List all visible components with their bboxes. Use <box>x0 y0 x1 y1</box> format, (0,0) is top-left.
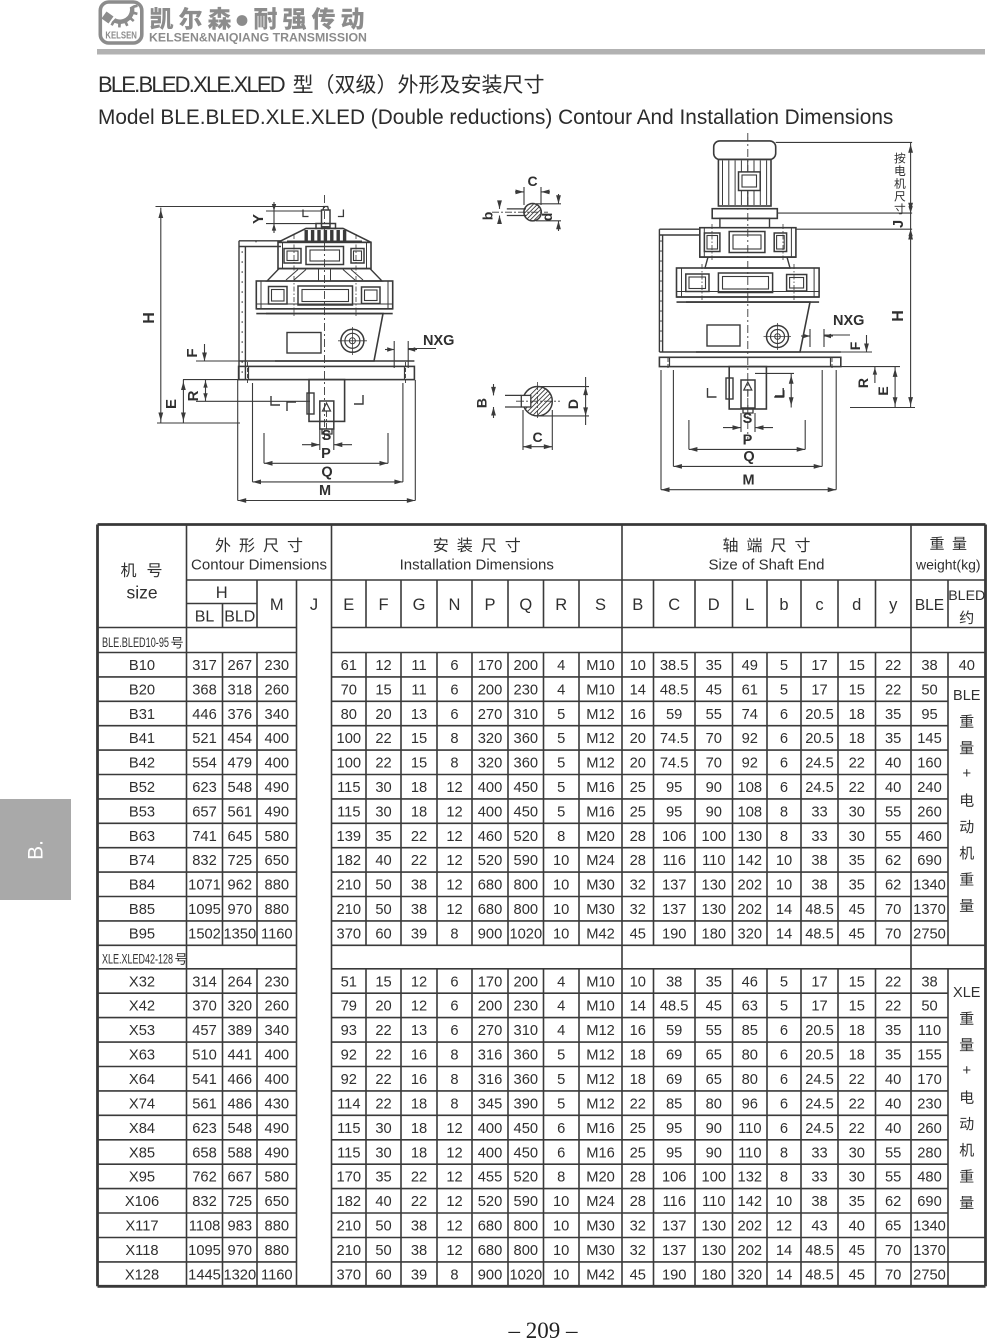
svg-text:M42: M42 <box>586 926 615 942</box>
svg-text:18: 18 <box>411 804 427 820</box>
svg-text:H: H <box>141 312 158 324</box>
svg-text:X95: X95 <box>129 1170 155 1186</box>
svg-text:400: 400 <box>478 804 503 820</box>
svg-text:12: 12 <box>446 1243 462 1259</box>
svg-text:Model BLE.BLED.XLE.XLED (Doubl: Model BLE.BLED.XLE.XLED (Double reductio… <box>98 106 893 129</box>
svg-text:1095: 1095 <box>188 902 221 918</box>
svg-text:5: 5 <box>780 974 788 990</box>
svg-text:G: G <box>413 596 426 614</box>
svg-text:202: 202 <box>738 1243 763 1259</box>
svg-text:12: 12 <box>375 658 391 674</box>
svg-text:5: 5 <box>780 658 788 674</box>
svg-text:260: 260 <box>265 999 290 1015</box>
svg-text:160: 160 <box>917 756 942 772</box>
svg-text:561: 561 <box>228 804 253 820</box>
svg-text:12: 12 <box>446 829 462 845</box>
svg-text:50: 50 <box>375 902 391 918</box>
svg-text:155: 155 <box>917 1048 942 1064</box>
svg-text:8: 8 <box>780 804 788 820</box>
svg-text:b: b <box>779 596 788 614</box>
svg-text:R: R <box>555 596 567 614</box>
svg-text:116: 116 <box>662 853 685 869</box>
svg-text:8: 8 <box>450 1096 458 1112</box>
svg-text:69: 69 <box>666 1048 682 1064</box>
svg-text:260: 260 <box>917 1121 942 1137</box>
svg-text:137: 137 <box>662 878 687 894</box>
svg-text:6: 6 <box>450 999 458 1015</box>
svg-text:554: 554 <box>192 756 217 772</box>
svg-text:6: 6 <box>450 682 458 698</box>
svg-text:520: 520 <box>514 1170 539 1186</box>
svg-text:10: 10 <box>630 658 646 674</box>
svg-text:70: 70 <box>885 1267 901 1283</box>
svg-text:16: 16 <box>411 1048 427 1064</box>
svg-text:25: 25 <box>630 804 646 820</box>
svg-text:548: 548 <box>228 1121 253 1137</box>
svg-text:74.5: 74.5 <box>660 756 689 772</box>
svg-text:8: 8 <box>450 756 458 772</box>
svg-text:400: 400 <box>265 1048 290 1064</box>
svg-text:4: 4 <box>557 999 565 1015</box>
svg-text:454: 454 <box>228 731 253 747</box>
svg-text:5: 5 <box>557 1072 565 1088</box>
svg-text:22: 22 <box>375 1096 391 1112</box>
svg-text:J: J <box>891 220 907 228</box>
svg-text:40: 40 <box>849 1219 865 1235</box>
svg-text:115: 115 <box>337 1145 360 1161</box>
svg-text:5: 5 <box>557 707 565 723</box>
svg-text:13: 13 <box>411 707 427 723</box>
svg-text:22: 22 <box>375 731 391 747</box>
svg-text:983: 983 <box>228 1219 253 1235</box>
svg-text:55: 55 <box>885 829 901 845</box>
svg-text:5: 5 <box>557 804 565 820</box>
svg-text:114: 114 <box>337 1096 360 1112</box>
svg-text:800: 800 <box>514 1243 539 1259</box>
svg-text:650: 650 <box>265 1194 290 1210</box>
svg-text:1160: 1160 <box>261 926 293 942</box>
svg-text:S: S <box>595 596 606 614</box>
svg-text:320: 320 <box>738 1267 763 1283</box>
svg-text:8: 8 <box>780 829 788 845</box>
svg-text:18: 18 <box>411 1121 427 1137</box>
svg-text:455: 455 <box>478 1170 503 1186</box>
svg-text:14: 14 <box>776 1243 792 1259</box>
svg-text:38: 38 <box>811 878 827 894</box>
svg-text:M30: M30 <box>586 878 615 894</box>
svg-text:70: 70 <box>706 756 722 772</box>
svg-text:17: 17 <box>811 682 827 698</box>
svg-text:X42: X42 <box>129 999 155 1015</box>
svg-text:8: 8 <box>450 1048 458 1064</box>
svg-text:M12: M12 <box>586 1096 615 1112</box>
svg-text:741: 741 <box>192 829 217 845</box>
svg-text:680: 680 <box>478 878 503 894</box>
svg-text:61: 61 <box>341 658 357 674</box>
svg-text:340: 340 <box>265 1023 290 1039</box>
svg-text:Q: Q <box>519 596 532 614</box>
svg-text:50: 50 <box>375 1243 391 1259</box>
svg-text:74.5: 74.5 <box>660 731 689 747</box>
svg-text:320: 320 <box>228 999 253 1015</box>
svg-text:14: 14 <box>630 999 646 1015</box>
svg-text:490: 490 <box>265 780 290 796</box>
svg-text:832: 832 <box>192 1194 217 1210</box>
svg-text:S: S <box>322 428 332 444</box>
svg-text:510: 510 <box>192 1048 217 1064</box>
svg-text:490: 490 <box>265 804 290 820</box>
svg-text:400: 400 <box>478 1145 503 1161</box>
svg-text:BLD: BLD <box>224 609 255 626</box>
svg-text:520: 520 <box>514 829 539 845</box>
svg-text:8: 8 <box>557 829 565 845</box>
svg-text:C: C <box>527 173 537 189</box>
svg-text:40: 40 <box>375 853 391 869</box>
svg-text:40: 40 <box>885 1072 901 1088</box>
svg-text:130: 130 <box>702 902 727 918</box>
svg-text:70: 70 <box>885 1243 901 1259</box>
svg-text:170: 170 <box>478 974 503 990</box>
svg-text:18: 18 <box>849 731 865 747</box>
svg-text:24.5: 24.5 <box>805 1121 834 1137</box>
svg-text:17: 17 <box>811 974 827 990</box>
svg-text:74: 74 <box>742 707 758 723</box>
svg-text:48.5: 48.5 <box>805 1243 834 1259</box>
svg-text:1020: 1020 <box>509 1267 542 1283</box>
svg-text:479: 479 <box>228 756 253 772</box>
svg-text:48.5: 48.5 <box>805 1267 834 1283</box>
svg-text:10: 10 <box>630 974 646 990</box>
svg-text:18: 18 <box>849 707 865 723</box>
svg-text:XLE.XLED42-128: XLE.XLED42-128 <box>102 951 173 966</box>
svg-text:35: 35 <box>885 1048 901 1064</box>
svg-text:50: 50 <box>921 682 937 698</box>
svg-text:12: 12 <box>446 902 462 918</box>
svg-text:12: 12 <box>446 780 462 796</box>
svg-text:1160: 1160 <box>261 1267 293 1283</box>
svg-text:45: 45 <box>849 902 865 918</box>
svg-text:B53: B53 <box>129 804 155 820</box>
svg-text:400: 400 <box>265 756 290 772</box>
svg-text:800: 800 <box>514 878 539 894</box>
svg-text:10: 10 <box>776 1194 792 1210</box>
svg-text:M16: M16 <box>586 1121 615 1137</box>
svg-text:22: 22 <box>849 780 865 796</box>
svg-text:690: 690 <box>917 1194 942 1210</box>
svg-text:490: 490 <box>265 1145 290 1161</box>
svg-text:15: 15 <box>849 999 865 1015</box>
svg-text:B31: B31 <box>129 707 155 723</box>
svg-text:X74: X74 <box>129 1096 155 1112</box>
svg-text:645: 645 <box>228 829 253 845</box>
svg-text:X118: X118 <box>125 1243 158 1259</box>
svg-text:18: 18 <box>411 1145 427 1161</box>
svg-text:130: 130 <box>702 1219 727 1235</box>
svg-text:95: 95 <box>666 780 682 796</box>
svg-text:18: 18 <box>411 780 427 796</box>
svg-text:22: 22 <box>885 999 901 1015</box>
svg-text:690: 690 <box>917 853 942 869</box>
svg-text:2750: 2750 <box>913 926 946 942</box>
svg-text:B95: B95 <box>129 926 155 942</box>
svg-text:B: B <box>474 398 490 408</box>
svg-text:30: 30 <box>849 1170 865 1186</box>
svg-text:62: 62 <box>885 1194 901 1210</box>
svg-text:M16: M16 <box>586 1145 615 1161</box>
svg-text:33: 33 <box>811 804 827 820</box>
svg-text:8: 8 <box>450 1072 458 1088</box>
svg-text:69: 69 <box>666 1072 682 1088</box>
svg-text:590: 590 <box>514 1194 539 1210</box>
svg-text:35: 35 <box>885 707 901 723</box>
svg-text:180: 180 <box>702 1267 727 1283</box>
svg-text:6: 6 <box>450 1023 458 1039</box>
svg-text:92: 92 <box>341 1048 357 1064</box>
svg-text:310: 310 <box>514 1023 539 1039</box>
svg-text:16: 16 <box>630 1023 646 1039</box>
svg-text:10: 10 <box>776 853 792 869</box>
svg-text:20: 20 <box>630 731 646 747</box>
svg-text:M12: M12 <box>586 731 615 747</box>
svg-text:6: 6 <box>780 1048 788 1064</box>
svg-text:210: 210 <box>337 902 362 918</box>
svg-text:6: 6 <box>780 1023 788 1039</box>
svg-text:80: 80 <box>742 1048 758 1064</box>
svg-text:J: J <box>310 596 318 614</box>
svg-text:490: 490 <box>265 1121 290 1137</box>
svg-text:55: 55 <box>885 1170 901 1186</box>
svg-text:22: 22 <box>849 1072 865 1088</box>
svg-text:137: 137 <box>662 902 687 918</box>
svg-text:R: R <box>185 390 202 401</box>
svg-text:65: 65 <box>706 1048 722 1064</box>
svg-text:100: 100 <box>337 756 362 772</box>
svg-text:D: D <box>708 596 720 614</box>
svg-text:190: 190 <box>662 1267 687 1283</box>
svg-text:X128: X128 <box>125 1267 159 1283</box>
svg-text:30: 30 <box>375 780 391 796</box>
svg-text:182: 182 <box>337 853 362 869</box>
svg-text:230: 230 <box>265 974 290 990</box>
svg-text:20.5: 20.5 <box>805 707 834 723</box>
svg-text:12: 12 <box>446 1170 462 1186</box>
svg-text:50: 50 <box>375 1219 391 1235</box>
svg-text:16: 16 <box>630 707 646 723</box>
svg-text:6: 6 <box>780 1096 788 1112</box>
svg-text:R: R <box>855 378 871 388</box>
svg-text:6: 6 <box>780 756 788 772</box>
svg-text:22: 22 <box>885 682 901 698</box>
svg-text:18: 18 <box>411 1096 427 1112</box>
svg-text:130: 130 <box>738 829 763 845</box>
svg-text:20: 20 <box>630 756 646 772</box>
svg-text:62: 62 <box>885 853 901 869</box>
svg-text:85: 85 <box>666 1096 682 1112</box>
svg-text:Q: Q <box>743 449 754 465</box>
svg-text:6: 6 <box>780 780 788 796</box>
svg-text:900: 900 <box>478 1267 503 1283</box>
svg-text:30: 30 <box>849 829 865 845</box>
svg-text:1071: 1071 <box>188 878 221 894</box>
svg-text:38: 38 <box>666 974 682 990</box>
svg-text:38: 38 <box>411 1219 427 1235</box>
svg-text:45: 45 <box>706 682 722 698</box>
svg-text:142: 142 <box>738 853 763 869</box>
svg-text:190: 190 <box>662 926 687 942</box>
svg-text:110: 110 <box>738 1121 761 1137</box>
svg-text:20.5: 20.5 <box>805 1048 834 1064</box>
svg-text:M12: M12 <box>586 1072 615 1088</box>
svg-text:50: 50 <box>375 878 391 894</box>
svg-text:4: 4 <box>557 974 565 990</box>
svg-text:30: 30 <box>375 1145 391 1161</box>
svg-text:X84: X84 <box>129 1121 155 1137</box>
svg-text:658: 658 <box>192 1145 217 1161</box>
svg-text:320: 320 <box>478 756 503 772</box>
svg-text:X117: X117 <box>125 1219 158 1235</box>
svg-text:B20: B20 <box>129 682 155 698</box>
svg-text:170: 170 <box>337 1170 362 1186</box>
svg-text:5: 5 <box>557 756 565 772</box>
svg-text:X53: X53 <box>129 1023 155 1039</box>
svg-text:580: 580 <box>265 1170 290 1186</box>
svg-text:460: 460 <box>478 829 503 845</box>
svg-text:22: 22 <box>885 658 901 674</box>
svg-text:520: 520 <box>478 853 503 869</box>
svg-text:33: 33 <box>811 1170 827 1186</box>
svg-text:M20: M20 <box>586 829 615 845</box>
svg-text:6: 6 <box>450 974 458 990</box>
svg-text:96: 96 <box>742 1096 758 1112</box>
svg-text:400: 400 <box>478 1121 503 1137</box>
svg-text:210: 210 <box>337 1219 362 1235</box>
svg-text:M30: M30 <box>586 1243 615 1259</box>
svg-text:15: 15 <box>849 974 865 990</box>
svg-text:63: 63 <box>742 999 758 1015</box>
svg-text:92: 92 <box>742 731 758 747</box>
svg-text:145: 145 <box>917 731 942 747</box>
svg-text:10: 10 <box>553 1243 569 1259</box>
svg-text:260: 260 <box>265 682 290 698</box>
svg-text:202: 202 <box>738 902 763 918</box>
svg-text:100: 100 <box>702 829 727 845</box>
svg-text:521: 521 <box>192 731 217 747</box>
svg-text:C: C <box>532 429 542 445</box>
svg-text:60: 60 <box>375 926 391 942</box>
svg-text:38: 38 <box>811 853 827 869</box>
svg-text:108: 108 <box>738 804 763 820</box>
svg-text:14: 14 <box>630 682 646 698</box>
svg-text:70: 70 <box>885 902 901 918</box>
svg-text:M10: M10 <box>586 682 615 698</box>
svg-text:200: 200 <box>478 999 503 1015</box>
svg-text:10: 10 <box>553 853 569 869</box>
svg-text:80: 80 <box>742 1072 758 1088</box>
svg-text:M10: M10 <box>586 974 615 990</box>
svg-text:95: 95 <box>666 804 682 820</box>
svg-text:30: 30 <box>849 1145 865 1161</box>
svg-text:110: 110 <box>738 1145 761 1161</box>
svg-text:11: 11 <box>411 682 426 698</box>
svg-text:30: 30 <box>375 804 391 820</box>
svg-text:93: 93 <box>341 1023 357 1039</box>
svg-text:22: 22 <box>411 853 427 869</box>
svg-text:14: 14 <box>776 902 792 918</box>
svg-text:623: 623 <box>192 780 217 796</box>
svg-text:316: 316 <box>478 1072 503 1088</box>
svg-text:450: 450 <box>514 780 539 796</box>
svg-text:12: 12 <box>411 999 427 1015</box>
svg-text:F: F <box>184 348 201 357</box>
svg-text:17: 17 <box>811 658 827 674</box>
svg-text:10: 10 <box>553 1267 569 1283</box>
svg-text:137: 137 <box>662 1243 687 1259</box>
svg-text:230: 230 <box>265 658 290 674</box>
svg-text:size: size <box>126 583 157 603</box>
svg-text:40: 40 <box>885 780 901 796</box>
svg-text:310: 310 <box>514 707 539 723</box>
svg-text:B84: B84 <box>129 878 155 894</box>
svg-text:61: 61 <box>742 682 758 698</box>
svg-text:480: 480 <box>917 1170 942 1186</box>
svg-text:360: 360 <box>514 1072 539 1088</box>
svg-text:14: 14 <box>776 1267 792 1283</box>
svg-text:C: C <box>668 596 680 614</box>
svg-text:95: 95 <box>666 1121 682 1137</box>
svg-text:KELSEN: KELSEN <box>105 31 136 42</box>
svg-text:1340: 1340 <box>913 878 946 894</box>
svg-text:y: y <box>889 596 898 614</box>
svg-text:450: 450 <box>514 804 539 820</box>
svg-text:360: 360 <box>514 1048 539 1064</box>
svg-text:108: 108 <box>738 780 763 796</box>
svg-text:725: 725 <box>228 853 253 869</box>
svg-text:Installation Dimensions: Installation Dimensions <box>400 557 554 574</box>
svg-text:1370: 1370 <box>913 1243 946 1259</box>
svg-text:400: 400 <box>265 731 290 747</box>
svg-text:35: 35 <box>849 1194 865 1210</box>
svg-text:E: E <box>163 399 180 409</box>
svg-text:– 209 –: – 209 – <box>508 1318 579 1341</box>
svg-text:22: 22 <box>375 1048 391 1064</box>
svg-text:43: 43 <box>811 1219 827 1235</box>
svg-text:X63: X63 <box>129 1048 155 1064</box>
svg-text:15: 15 <box>375 682 391 698</box>
svg-text:65: 65 <box>885 1219 901 1235</box>
svg-text:6: 6 <box>450 707 458 723</box>
svg-text:360: 360 <box>514 756 539 772</box>
svg-text:BLE.BLED10-95: BLE.BLED10-95 <box>102 635 169 650</box>
svg-text:22: 22 <box>375 1072 391 1088</box>
svg-text:25: 25 <box>630 1145 646 1161</box>
svg-text:50: 50 <box>921 999 937 1015</box>
svg-text:M12: M12 <box>586 1023 615 1039</box>
svg-text:15: 15 <box>849 658 865 674</box>
svg-text:32: 32 <box>630 878 646 894</box>
svg-text:KELSEN&NAIQIANG TRANSMISSION: KELSEN&NAIQIANG TRANSMISSION <box>149 31 367 45</box>
svg-text:M10: M10 <box>586 999 615 1015</box>
svg-text:22: 22 <box>411 829 427 845</box>
svg-text:182: 182 <box>337 1194 362 1210</box>
svg-text:15: 15 <box>411 731 427 747</box>
svg-text:10: 10 <box>553 926 569 942</box>
svg-text:33: 33 <box>811 829 827 845</box>
svg-text:316: 316 <box>478 1048 503 1064</box>
svg-text:38: 38 <box>811 1194 827 1210</box>
svg-text:X85: X85 <box>129 1145 155 1161</box>
svg-text:49: 49 <box>742 658 758 674</box>
svg-text:B.: B. <box>25 840 48 860</box>
